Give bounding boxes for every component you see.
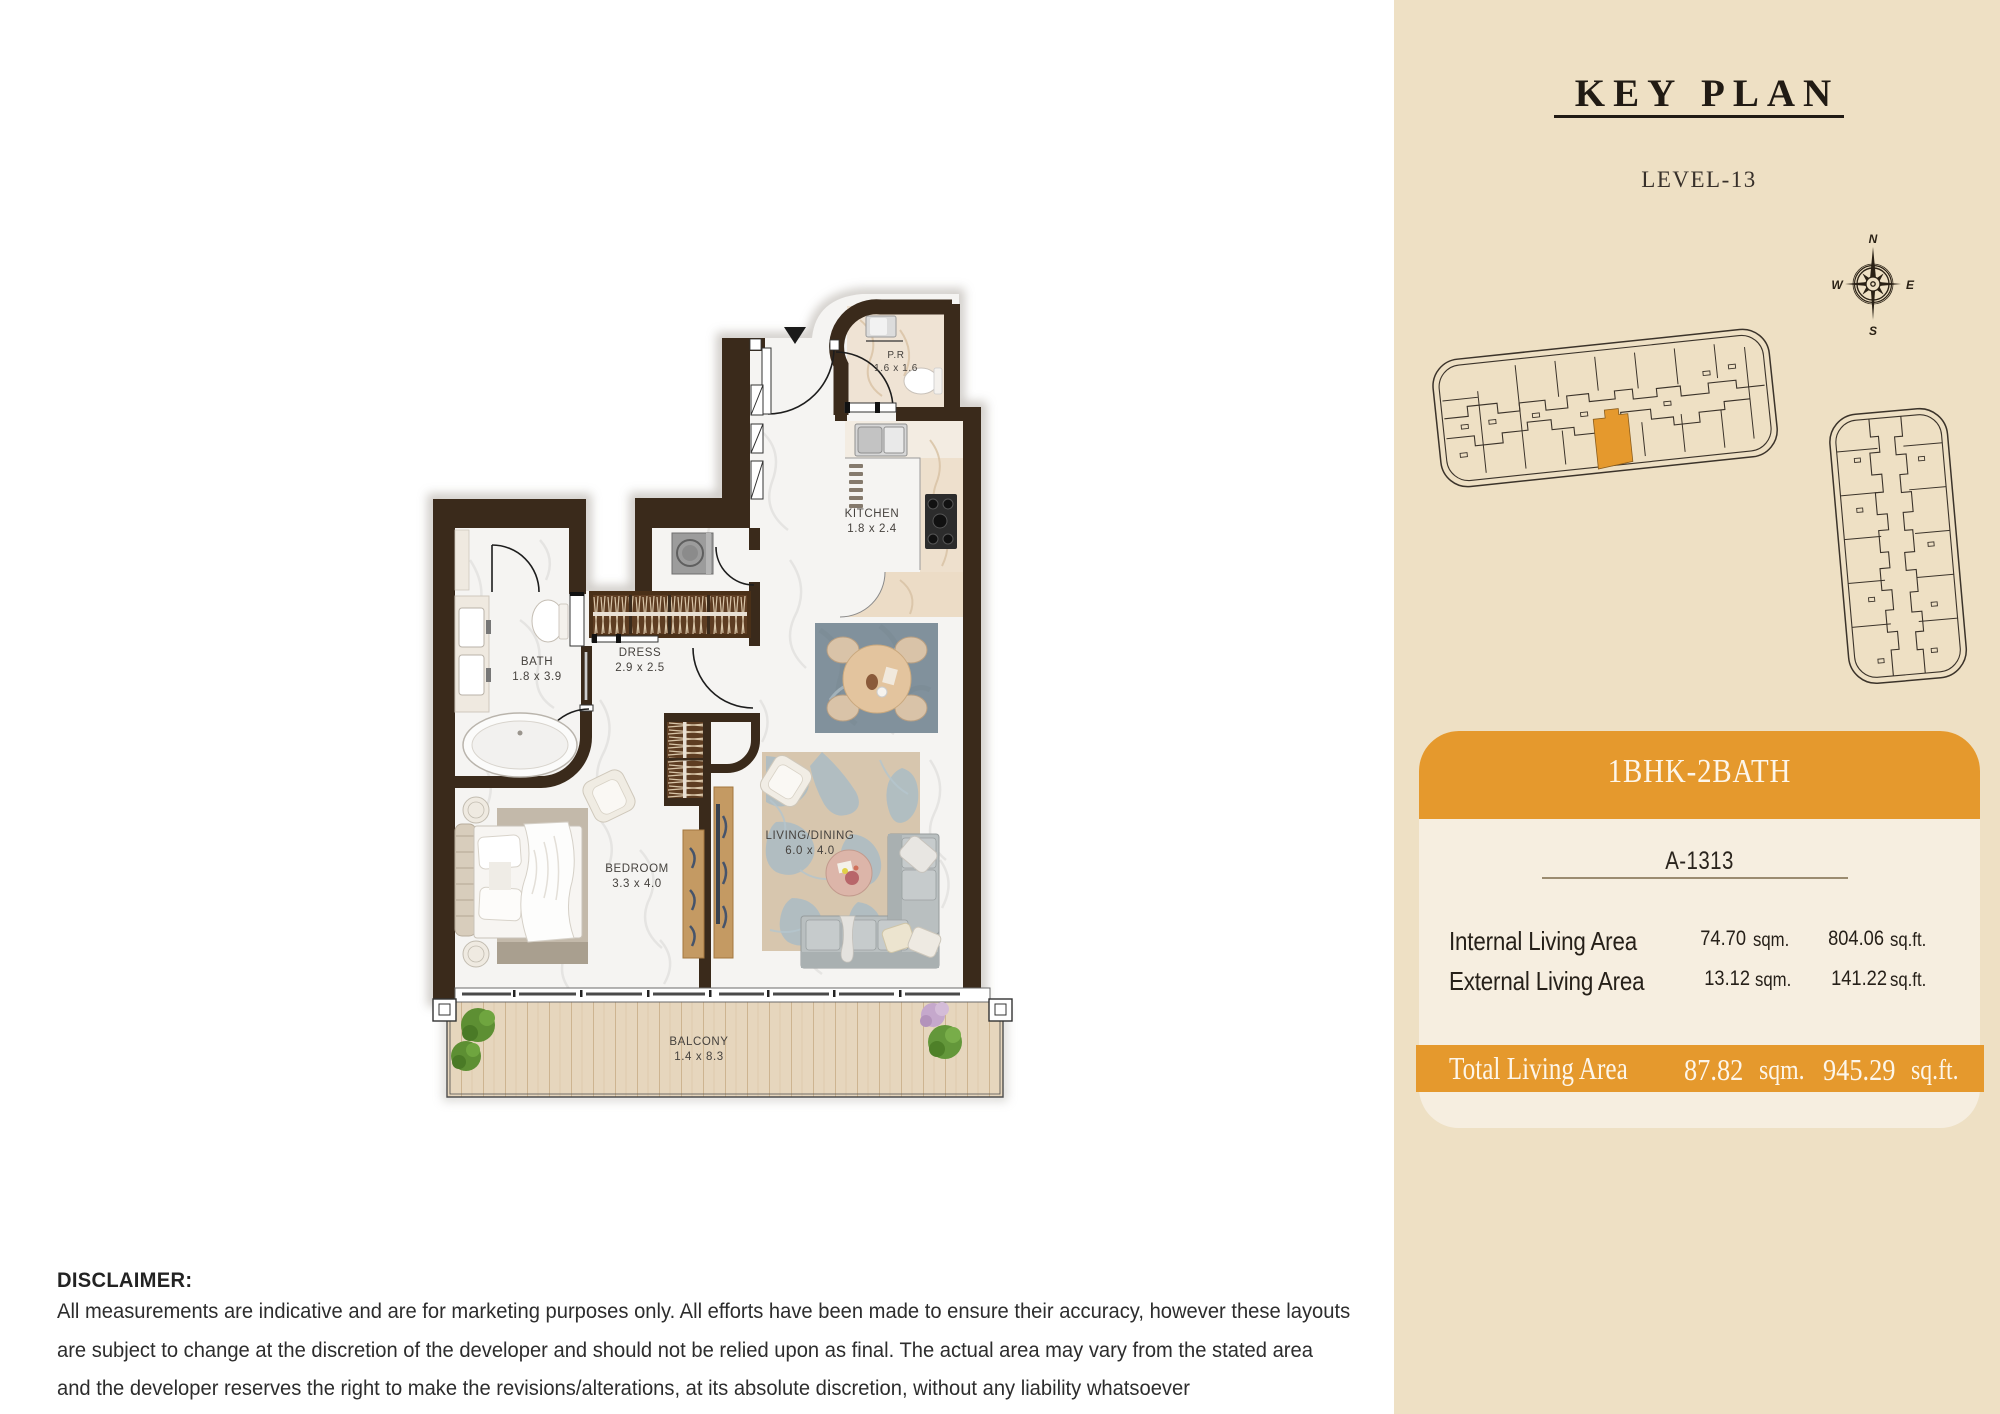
svg-text:S: S bbox=[1869, 324, 1877, 337]
svg-text:3.3 x 4.0: 3.3 x 4.0 bbox=[612, 878, 662, 890]
svg-text:2.9 x 2.5: 2.9 x 2.5 bbox=[615, 662, 665, 674]
svg-text:LIVING/DINING: LIVING/DINING bbox=[766, 830, 855, 842]
svg-text:1.8 x 2.4: 1.8 x 2.4 bbox=[847, 523, 897, 535]
svg-text:E: E bbox=[1906, 278, 1915, 292]
svg-text:BEDROOM: BEDROOM bbox=[605, 863, 669, 875]
svg-text:DRESS: DRESS bbox=[619, 647, 662, 659]
svg-text:BATH: BATH bbox=[521, 656, 553, 668]
svg-text:BALCONY: BALCONY bbox=[669, 1036, 728, 1048]
svg-text:N: N bbox=[1869, 232, 1878, 246]
svg-text:P.R: P.R bbox=[887, 350, 904, 361]
svg-text:1.8 x 3.9: 1.8 x 3.9 bbox=[512, 671, 562, 683]
svg-text:1.6 x 1.6: 1.6 x 1.6 bbox=[874, 363, 918, 374]
svg-text:W: W bbox=[1831, 278, 1844, 292]
svg-text:6.0 x 4.0: 6.0 x 4.0 bbox=[785, 845, 835, 857]
svg-text:1.4 x 8.3: 1.4 x 8.3 bbox=[674, 1051, 724, 1063]
svg-text:KITCHEN: KITCHEN bbox=[845, 508, 900, 520]
